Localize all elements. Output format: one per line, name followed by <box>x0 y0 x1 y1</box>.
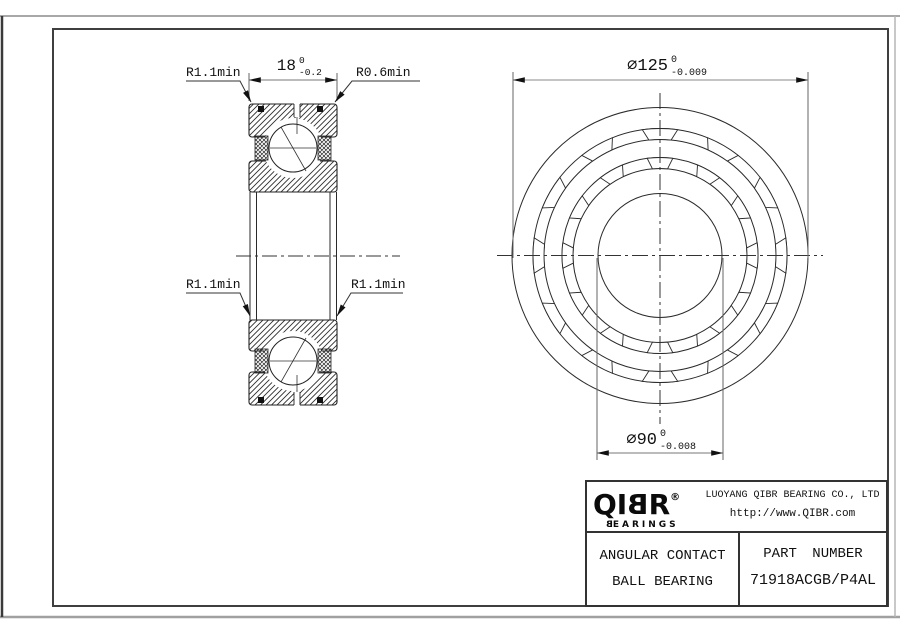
drawing-sheet: 18 0 -0.2 R1.1min R0.6min R1.1min R1.1mi… <box>0 0 900 636</box>
company-name: LUOYANG QIBR BEARING CO., LTD <box>699 487 886 505</box>
cage-section-bottom-right <box>318 349 331 373</box>
cage-pocket-inner <box>569 196 588 219</box>
product-type-line2: BALL BEARING <box>587 569 738 595</box>
cage-pocket-outer <box>754 177 777 208</box>
company-website: http://www.QIBR.com <box>699 505 886 523</box>
part-number-label: PART NUMBER <box>740 541 886 567</box>
logo-wordmark: QIBR® <box>593 484 699 519</box>
cage-section-top-right <box>318 136 331 160</box>
fillet-label-mid-right: R1.1min <box>351 277 406 292</box>
cage-section-top-left <box>255 136 268 160</box>
cross-section-view <box>236 103 400 406</box>
cage-pocket-inner <box>697 327 720 346</box>
seal-mark-top-left <box>258 106 264 112</box>
width-dim-tol-lower: -0.2 <box>299 67 322 78</box>
outer-dia-tol-lower: -0.009 <box>671 68 707 79</box>
ring-groove-notch-bottom <box>294 391 300 406</box>
title-block-header-row: QIBR® BEARINGS LUOYANG QIBR BEARING CO.,… <box>587 482 886 533</box>
bore-dia-tol-upper: 0 <box>660 429 666 440</box>
fillet-label-mid-left: R1.1min <box>186 277 241 292</box>
cage-section-bottom-left <box>255 349 268 373</box>
fillet-label-top-right: R0.6min <box>356 65 411 80</box>
title-block-detail-row: ANGULAR CONTACT BALL BEARING PART NUMBER… <box>587 533 886 605</box>
company-logo: QIBR® BEARINGS <box>587 482 699 531</box>
cage-pocket-outer <box>708 138 739 161</box>
bore-dia-value: ⌀90 <box>626 431 657 450</box>
part-number-value: 71918ACGB/P4AL <box>740 567 886 595</box>
leader-top-right <box>335 81 420 102</box>
cage-pocket-inner <box>731 292 750 315</box>
company-info: LUOYANG QIBR BEARING CO., LTD http://www… <box>699 482 886 531</box>
leader-mid-right <box>337 293 403 316</box>
product-type-cell: ANGULAR CONTACT BALL BEARING <box>587 533 740 605</box>
outer-dia-tol-upper: 0 <box>671 55 677 66</box>
cage-pocket-inner <box>569 292 588 315</box>
part-number-cell: PART NUMBER 71918ACGB/P4AL <box>740 533 886 605</box>
seal-mark-top-right <box>317 106 323 112</box>
width-dim-tol-upper: 0 <box>299 55 305 66</box>
cage-pocket-outer <box>582 138 613 161</box>
seal-mark-bottom-left <box>258 397 264 403</box>
title-block: QIBR® BEARINGS LUOYANG QIBR BEARING CO.,… <box>585 480 888 607</box>
front-view-centerlines <box>497 93 823 424</box>
bore-dia-tol-lower: -0.008 <box>660 442 696 453</box>
cage-pocket-inner <box>600 165 623 184</box>
seal-mark-bottom-right <box>317 397 323 403</box>
outer-dia-value: ⌀125 <box>627 57 668 76</box>
leader-mid-left <box>186 293 250 316</box>
cage-pocket-outer <box>542 303 565 334</box>
cage-pocket-inner <box>697 165 720 184</box>
cage-pocket-outer <box>754 303 777 334</box>
width-dim-value: 18 <box>277 57 296 75</box>
registered-trademark-symbol: ® <box>670 492 680 503</box>
logo-subtitle: BEARINGS <box>603 520 699 530</box>
cage-pocket-inner <box>600 327 623 346</box>
ring-groove-notch-top <box>294 103 300 118</box>
product-type-line1: ANGULAR CONTACT <box>587 543 738 569</box>
cage-pocket-inner <box>731 196 750 219</box>
cage-pocket-outer <box>542 177 565 208</box>
leader-top-left <box>186 81 251 102</box>
fillet-label-top-left: R1.1min <box>186 65 241 80</box>
